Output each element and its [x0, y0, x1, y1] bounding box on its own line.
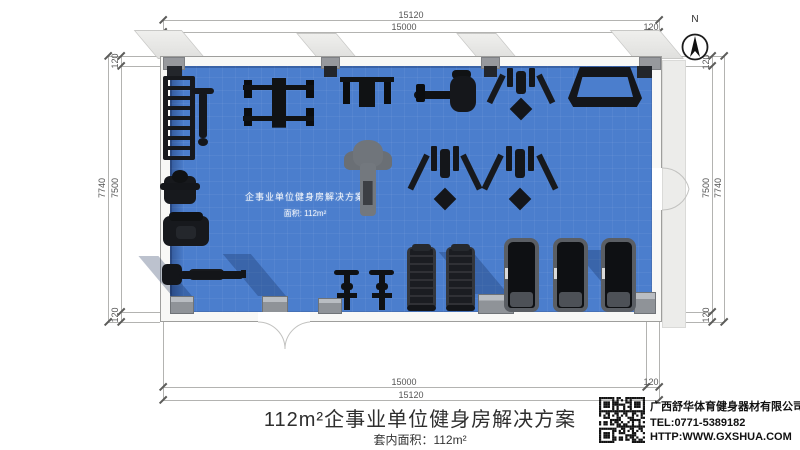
qr-code: [599, 397, 645, 443]
stair-climber-2: [446, 247, 475, 309]
treadmill-3: [601, 238, 636, 312]
bench-press: [162, 261, 246, 288]
adjustable-bench: [192, 88, 214, 146]
spin-bike-2: [369, 269, 394, 314]
equipment-layer: [0, 0, 800, 450]
cable-crossover-2: [494, 146, 546, 208]
treadmill-1: [504, 238, 539, 312]
seated-row-machine: [163, 216, 209, 246]
shoulder-press-machine: [344, 140, 392, 218]
company-name: 广西舒华体育健身器材有限公司: [650, 398, 800, 414]
plan-area-label: 套内面积：112m²: [170, 431, 670, 448]
spin-bike-1: [334, 269, 359, 314]
floor-plan-canvas: 15120 15000 120 15000 120 15120 7740 750…: [0, 0, 800, 450]
company-tel: TEL:0771-5389182: [650, 417, 800, 429]
kettlebell-trainer: [164, 176, 196, 204]
squat-rack: [568, 67, 642, 107]
bench-press-station: [242, 76, 316, 130]
plan-title: 112m²企事业单位健身房解决方案: [170, 403, 670, 432]
cable-crossover-1: [420, 146, 470, 208]
stair-climber-1: [407, 247, 436, 309]
treadmill-2: [553, 238, 588, 312]
weight-bench: [340, 74, 394, 110]
dumbbell-rack: [163, 76, 195, 160]
rowing-machine: [414, 70, 476, 118]
company-info: 广西舒华体育健身器材有限公司 TEL:0771-5389182 HTTP:WWW…: [650, 398, 800, 443]
multi-press-machine: [496, 68, 546, 118]
company-website: HTTP:WWW.GXSHUA.COM: [650, 431, 800, 443]
